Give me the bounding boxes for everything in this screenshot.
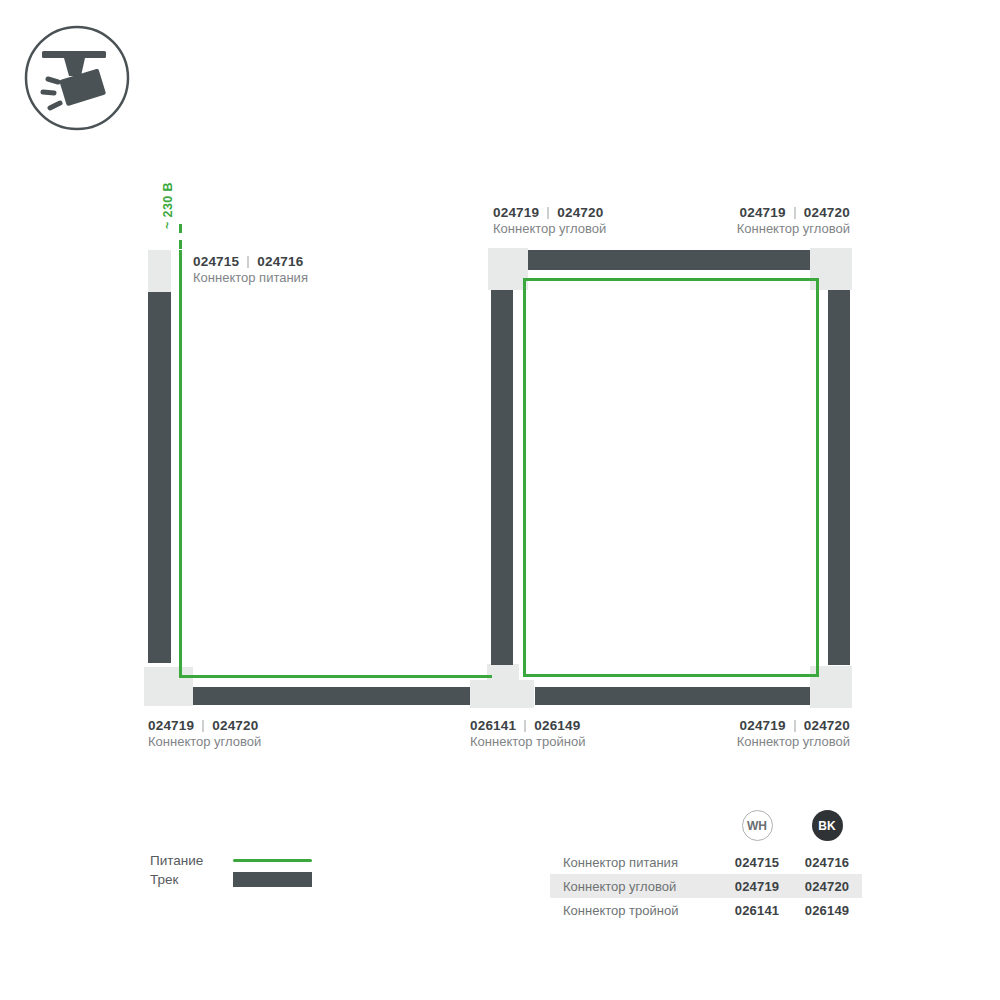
code-bk: 026149 xyxy=(534,719,580,733)
code-bk: 024716 xyxy=(257,255,303,269)
callout-codes: 024719 024720 xyxy=(493,206,606,220)
code-bk: 024720 xyxy=(212,719,258,733)
callout-codes: 024719 024720 xyxy=(148,719,261,733)
code-bk: 024720 xyxy=(557,206,603,220)
track-segment-left-vertical xyxy=(148,292,171,663)
track-segment-right-bottom xyxy=(535,687,810,705)
spec-table-header: WH BK xyxy=(550,810,862,850)
legend-row-track: Трек xyxy=(150,870,312,889)
diagram-canvas: ~ 230 В 024715 024716 Коннектор питания … xyxy=(0,0,1000,1000)
spec-code-wh: 024719 xyxy=(722,879,792,894)
code-wh: 024719 xyxy=(148,719,194,733)
icon-track-bar xyxy=(42,51,106,58)
bk-badge: BK xyxy=(812,810,843,841)
track-light-icon xyxy=(23,24,133,134)
callout-codes: 024719 024720 xyxy=(737,206,850,220)
code-wh: 024715 xyxy=(193,255,239,269)
callout-corner-top-mid: 024719 024720 Коннектор угловой xyxy=(493,206,606,236)
callout-name: Коннектор угловой xyxy=(737,222,850,236)
track-segment-left-bottom xyxy=(193,687,470,705)
spec-row-name: Коннектор угловой xyxy=(550,879,722,894)
code-wh: 024719 xyxy=(740,719,786,733)
spec-code-bk: 026149 xyxy=(792,903,862,918)
voltage-label: ~ 230 В xyxy=(161,183,177,229)
spec-header-wh: WH xyxy=(722,810,792,841)
code-wh: 024719 xyxy=(493,206,539,220)
callout-name: Коннектор угловой xyxy=(148,735,261,749)
callout-name: Коннектор угловой xyxy=(737,735,850,749)
code-divider xyxy=(524,720,526,732)
spec-code-wh: 024715 xyxy=(722,855,792,870)
legend-track-label: Трек xyxy=(150,872,233,887)
power-line-dashed-feed xyxy=(179,224,182,252)
track-segment-right-right xyxy=(828,290,850,665)
callout-name: Коннектор тройной xyxy=(470,735,585,749)
corner-connector-piece-bottom-left xyxy=(144,667,193,706)
legend-row-power: Питание xyxy=(150,851,312,870)
callout-name: Коннектор питания xyxy=(193,271,308,285)
legend-track-swatch xyxy=(233,872,312,887)
track-segment-right-top xyxy=(528,250,810,270)
wh-badge: WH xyxy=(742,810,773,841)
power-connector-piece xyxy=(148,250,171,292)
callout-corner-bottom-left: 024719 024720 Коннектор угловой xyxy=(148,719,261,749)
spec-row-name: Коннектор питания xyxy=(550,855,722,870)
callout-codes: 024719 024720 xyxy=(737,719,850,733)
code-divider xyxy=(547,207,549,219)
callout-triple-bottom-mid: 026141 026149 Коннектор тройной xyxy=(470,719,585,749)
code-divider xyxy=(247,256,249,268)
code-wh: 026141 xyxy=(470,719,516,733)
spec-row-triple: Коннектор тройной 026141 026149 xyxy=(550,898,862,922)
spec-row-corner: Коннектор угловой 024719 024720 xyxy=(550,874,862,898)
power-line-left-bottom xyxy=(179,675,492,678)
callout-codes: 026141 026149 xyxy=(470,719,585,733)
power-line-right-loop xyxy=(523,278,819,677)
power-line-left-vertical xyxy=(179,250,182,678)
spec-row-power: Коннектор питания 024715 024716 xyxy=(550,850,862,874)
code-divider xyxy=(794,720,796,732)
spec-code-wh: 026141 xyxy=(722,903,792,918)
corner-connector-piece-top-mid xyxy=(488,248,528,290)
code-divider xyxy=(202,720,204,732)
spec-header-bk: BK xyxy=(792,810,862,841)
spec-row-name: Коннектор тройной xyxy=(550,903,722,918)
callout-name: Коннектор угловой xyxy=(493,222,606,236)
legend: Питание Трек xyxy=(150,851,312,889)
spec-code-bk: 024716 xyxy=(792,855,862,870)
code-divider xyxy=(794,207,796,219)
track-segment-right-left xyxy=(491,290,513,665)
callout-codes: 024715 024716 xyxy=(193,255,308,269)
legend-power-swatch xyxy=(233,859,312,862)
spec-code-bk: 024720 xyxy=(792,879,862,894)
code-bk: 024720 xyxy=(804,719,850,733)
code-bk: 024720 xyxy=(804,206,850,220)
spec-table: WH BK Коннектор питания 024715 024716 Ко… xyxy=(550,810,862,922)
triple-connector-piece xyxy=(470,680,534,708)
callout-corner-bottom-right: 024719 024720 Коннектор угловой xyxy=(737,719,850,749)
code-wh: 024719 xyxy=(740,206,786,220)
legend-power-label: Питание xyxy=(150,853,233,868)
callout-corner-top-right: 024719 024720 Коннектор угловой xyxy=(737,206,850,236)
callout-power-connector: 024715 024716 Коннектор питания xyxy=(193,255,308,285)
